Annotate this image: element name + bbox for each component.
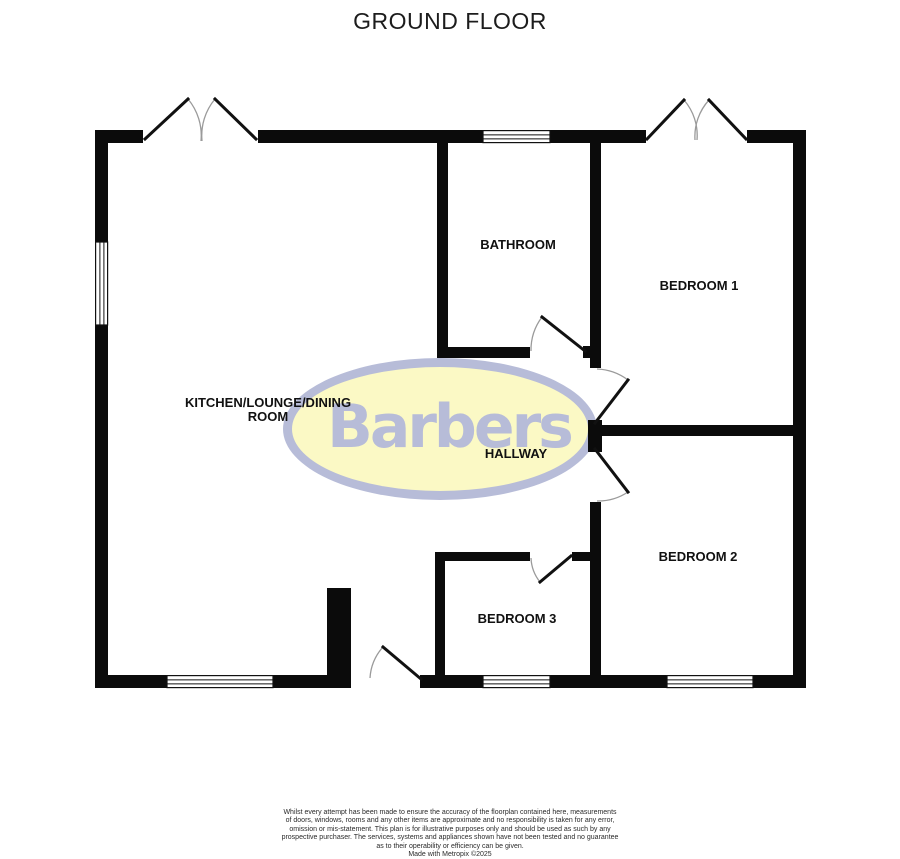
room-label-kitchen-line2: ROOM	[248, 409, 288, 424]
wall-bed3-left	[435, 552, 445, 688]
wall-bathroom-bottom	[437, 347, 530, 358]
wall-bed1-bed2-divider	[597, 425, 793, 436]
window-kitchen-bottom	[167, 676, 273, 688]
wall-bed3-top-stub	[572, 552, 590, 561]
wall-right	[793, 130, 806, 688]
leaf-frenchdoor-bed1-right	[709, 100, 746, 139]
leaf-door-bathroom	[542, 317, 585, 351]
arc-door-bed3	[531, 558, 540, 582]
wall-bottom-3	[420, 675, 483, 688]
wall-top-2	[258, 130, 483, 143]
disclaimer-line-3: omission or mis-statement. This plan is …	[0, 826, 900, 834]
wall-bottom-4	[550, 675, 667, 688]
disclaimer-line-1: Whilst every attempt has been made to en…	[0, 809, 900, 817]
window-bed3-bottom	[483, 676, 550, 688]
room-label-hallway: HALLWAY	[485, 447, 547, 461]
arc-door-kitchen-rear	[370, 647, 383, 678]
room-label-bedroom3: BEDROOM 3	[478, 612, 557, 626]
wall-bathroom-left	[437, 130, 448, 358]
room-label-bathroom: BATHROOM	[480, 238, 556, 252]
disclaimer-line-5: as to their operability or efficiency ca…	[0, 843, 900, 851]
arc-door-bed1	[597, 369, 628, 380]
room-label-bedroom2: BEDROOM 2	[659, 550, 738, 564]
disclaimer-line-4: prospective purchaser. The services, sys…	[0, 834, 900, 842]
arc-door-bathroom	[531, 317, 542, 351]
wall-bed3-top	[435, 552, 530, 561]
leaf-door-bed3	[540, 556, 571, 582]
leaf-door-kitchen-rear	[383, 647, 421, 679]
wall-hall-upper	[590, 130, 601, 368]
arc-frenchdoor-kitchen-right	[202, 99, 215, 141]
credit-line: Made with Metropix ©2025	[0, 851, 900, 859]
door-arcs	[188, 99, 709, 678]
wall-kitchen-stub	[327, 588, 351, 688]
floorplan-canvas: GROUND FLOOR Barbers	[0, 0, 900, 854]
room-label-kitchen-line1: KITCHEN/LOUNGE/DINING	[185, 395, 351, 410]
room-label-bedroom1: BEDROOM 1	[660, 279, 739, 293]
room-label-kitchen: KITCHEN/LOUNGE/DINING ROOM	[138, 396, 398, 424]
leaf-frenchdoor-kitchen-right	[215, 99, 256, 139]
window-kitchen-left	[96, 242, 108, 325]
floorplan-drawing	[0, 0, 900, 854]
arc-frenchdoor-kitchen-left	[188, 99, 201, 141]
wall-left-upper	[95, 130, 108, 242]
wall-bottom-1	[95, 675, 167, 688]
leaf-door-bed2	[595, 449, 628, 492]
leaf-frenchdoor-kitchen-left	[145, 99, 188, 139]
wall-left-lower	[95, 325, 108, 688]
window-bathroom-top	[483, 131, 550, 143]
arc-door-bed2	[597, 492, 628, 501]
window-bed2-bottom	[667, 676, 753, 688]
disclaimer: Whilst every attempt has been made to en…	[0, 809, 900, 859]
leaf-frenchdoor-bed1-left	[647, 100, 684, 139]
leaf-door-bed1	[595, 380, 628, 423]
disclaimer-line-2: of doors, windows, rooms and any other i…	[0, 817, 900, 825]
wall-hall-lower	[590, 502, 601, 688]
